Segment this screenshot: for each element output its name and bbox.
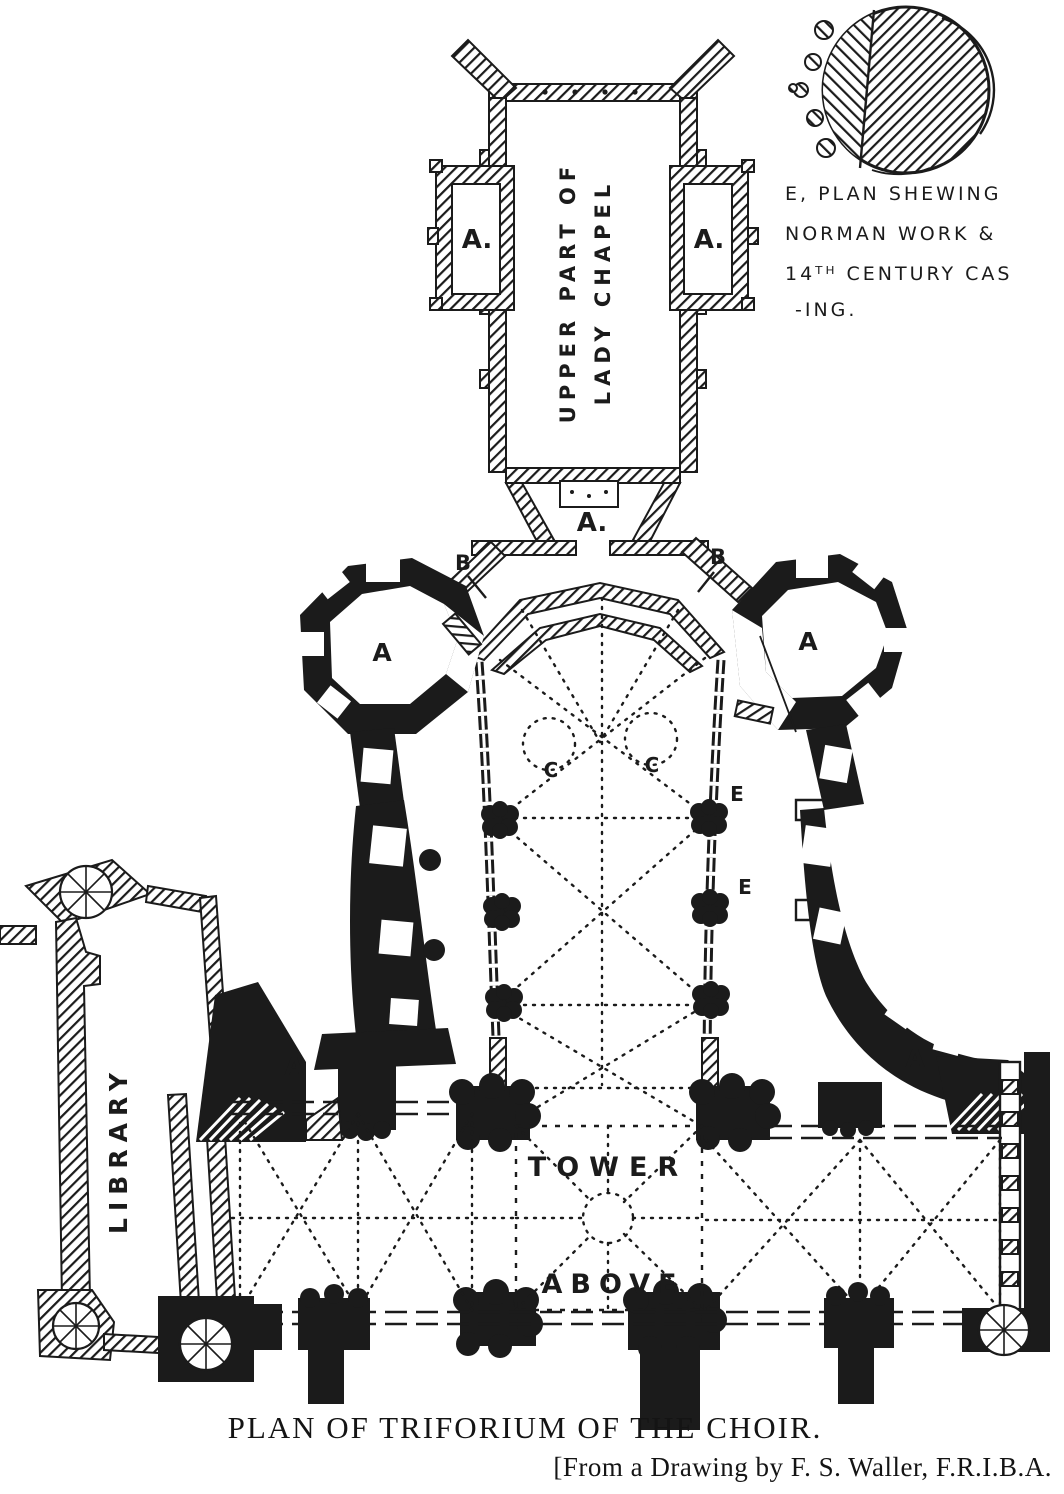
inset-note-line3: 14ᵀᴴ CENTURY CAS [785,263,1012,285]
marker-c-right: C [645,753,660,777]
marker-a-transept-left: A [284,1052,304,1081]
marker-e-upper: E [730,782,744,806]
marker-b-left: B [455,551,471,575]
marker-a-gallery-south: A. [577,508,607,538]
inset-note-line4: -ING. [795,299,857,321]
engraving-page: UPPER PART OF LADY CHAPEL A. A. A. B B [0,0,1064,1494]
library-label: LIBRARY [104,1066,133,1234]
marker-b-right: B [710,545,726,569]
lady-chapel-label-line1: UPPER PART OF [556,161,580,423]
marker-e-lower: E [738,875,752,899]
lady-chapel-label-line2: LADY CHAPEL [591,179,615,405]
inset-note-line2: NORMAN WORK & [785,223,996,245]
figure-credit: [From a Drawing by F. S. Waller, F.R.I.B… [553,1452,1052,1482]
inset-note-line1: E, PLAN SHEWING [785,183,1002,205]
se-corner-block [962,1305,1050,1355]
marker-a-octagon-right: A [798,627,818,656]
marker-a-chapel-left: A. [462,225,492,255]
crossing-label-line2: ABOVE [541,1269,684,1300]
sw-corner-block [158,1296,254,1382]
crossing-label-line1: TOWER [528,1152,688,1183]
figure-caption: PLAN OF TRIFORIUM OF THE CHOIR. [228,1410,823,1445]
triforium-plan-drawing: UPPER PART OF LADY CHAPEL A. A. A. B B [0,0,1064,1494]
marker-a-chapel-right: A. [694,225,724,255]
marker-c-left: C [544,758,559,782]
marker-a-octagon-left: A [372,638,392,667]
marker-a-transept-right: A [905,1044,925,1073]
